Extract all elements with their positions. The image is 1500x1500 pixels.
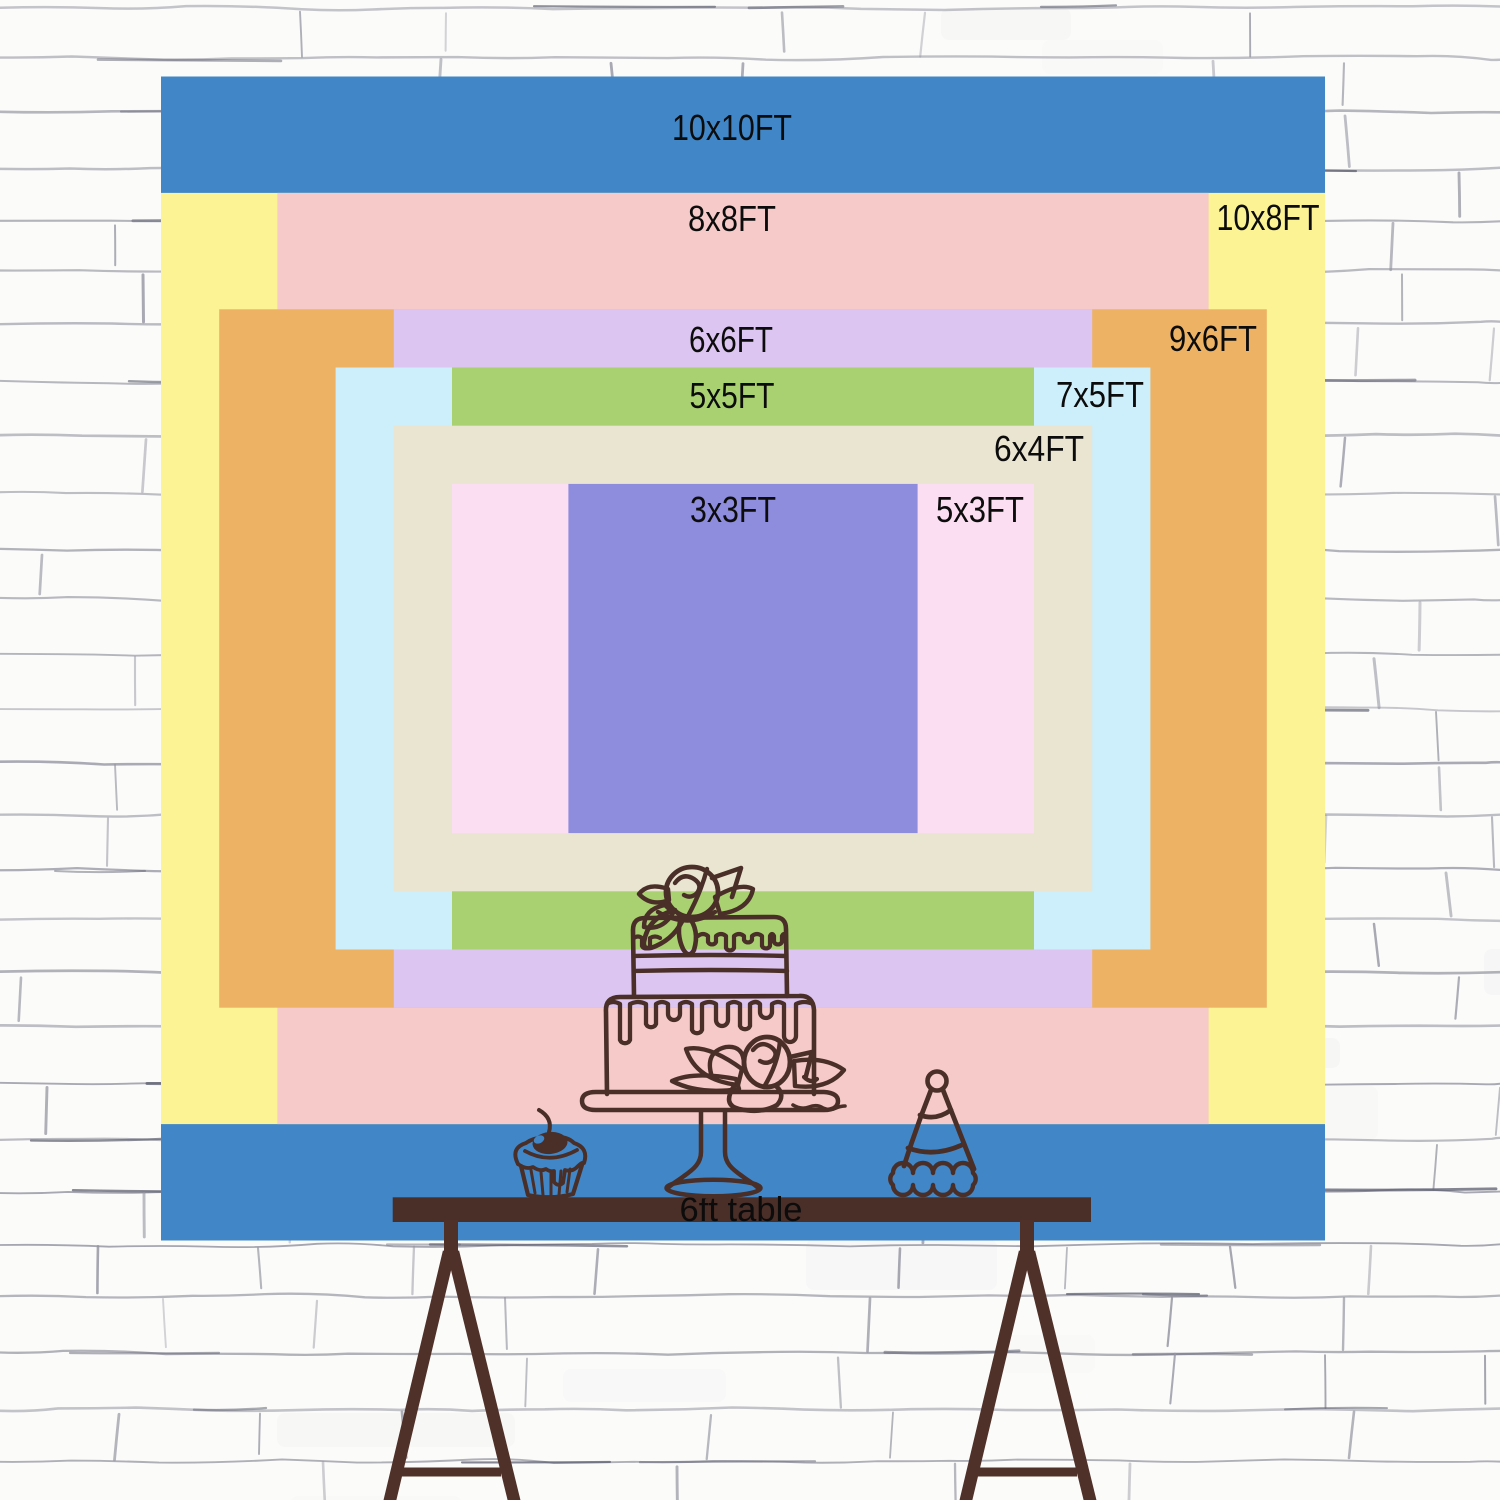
svg-text:5x5FT: 5x5FT	[690, 375, 775, 416]
svg-text:10x10FT: 10x10FT	[672, 107, 792, 148]
svg-text:9x6FT: 9x6FT	[1169, 318, 1257, 359]
svg-text:10x8FT: 10x8FT	[1217, 197, 1320, 238]
svg-text:8x8FT: 8x8FT	[688, 198, 776, 239]
svg-text:7x5FT: 7x5FT	[1056, 374, 1144, 415]
svg-text:3x3FT: 3x3FT	[690, 489, 776, 530]
svg-text:5x3FT: 5x3FT	[936, 489, 1024, 530]
svg-text:6x6FT: 6x6FT	[689, 319, 773, 360]
svg-text:6x4FT: 6x4FT	[994, 428, 1084, 469]
